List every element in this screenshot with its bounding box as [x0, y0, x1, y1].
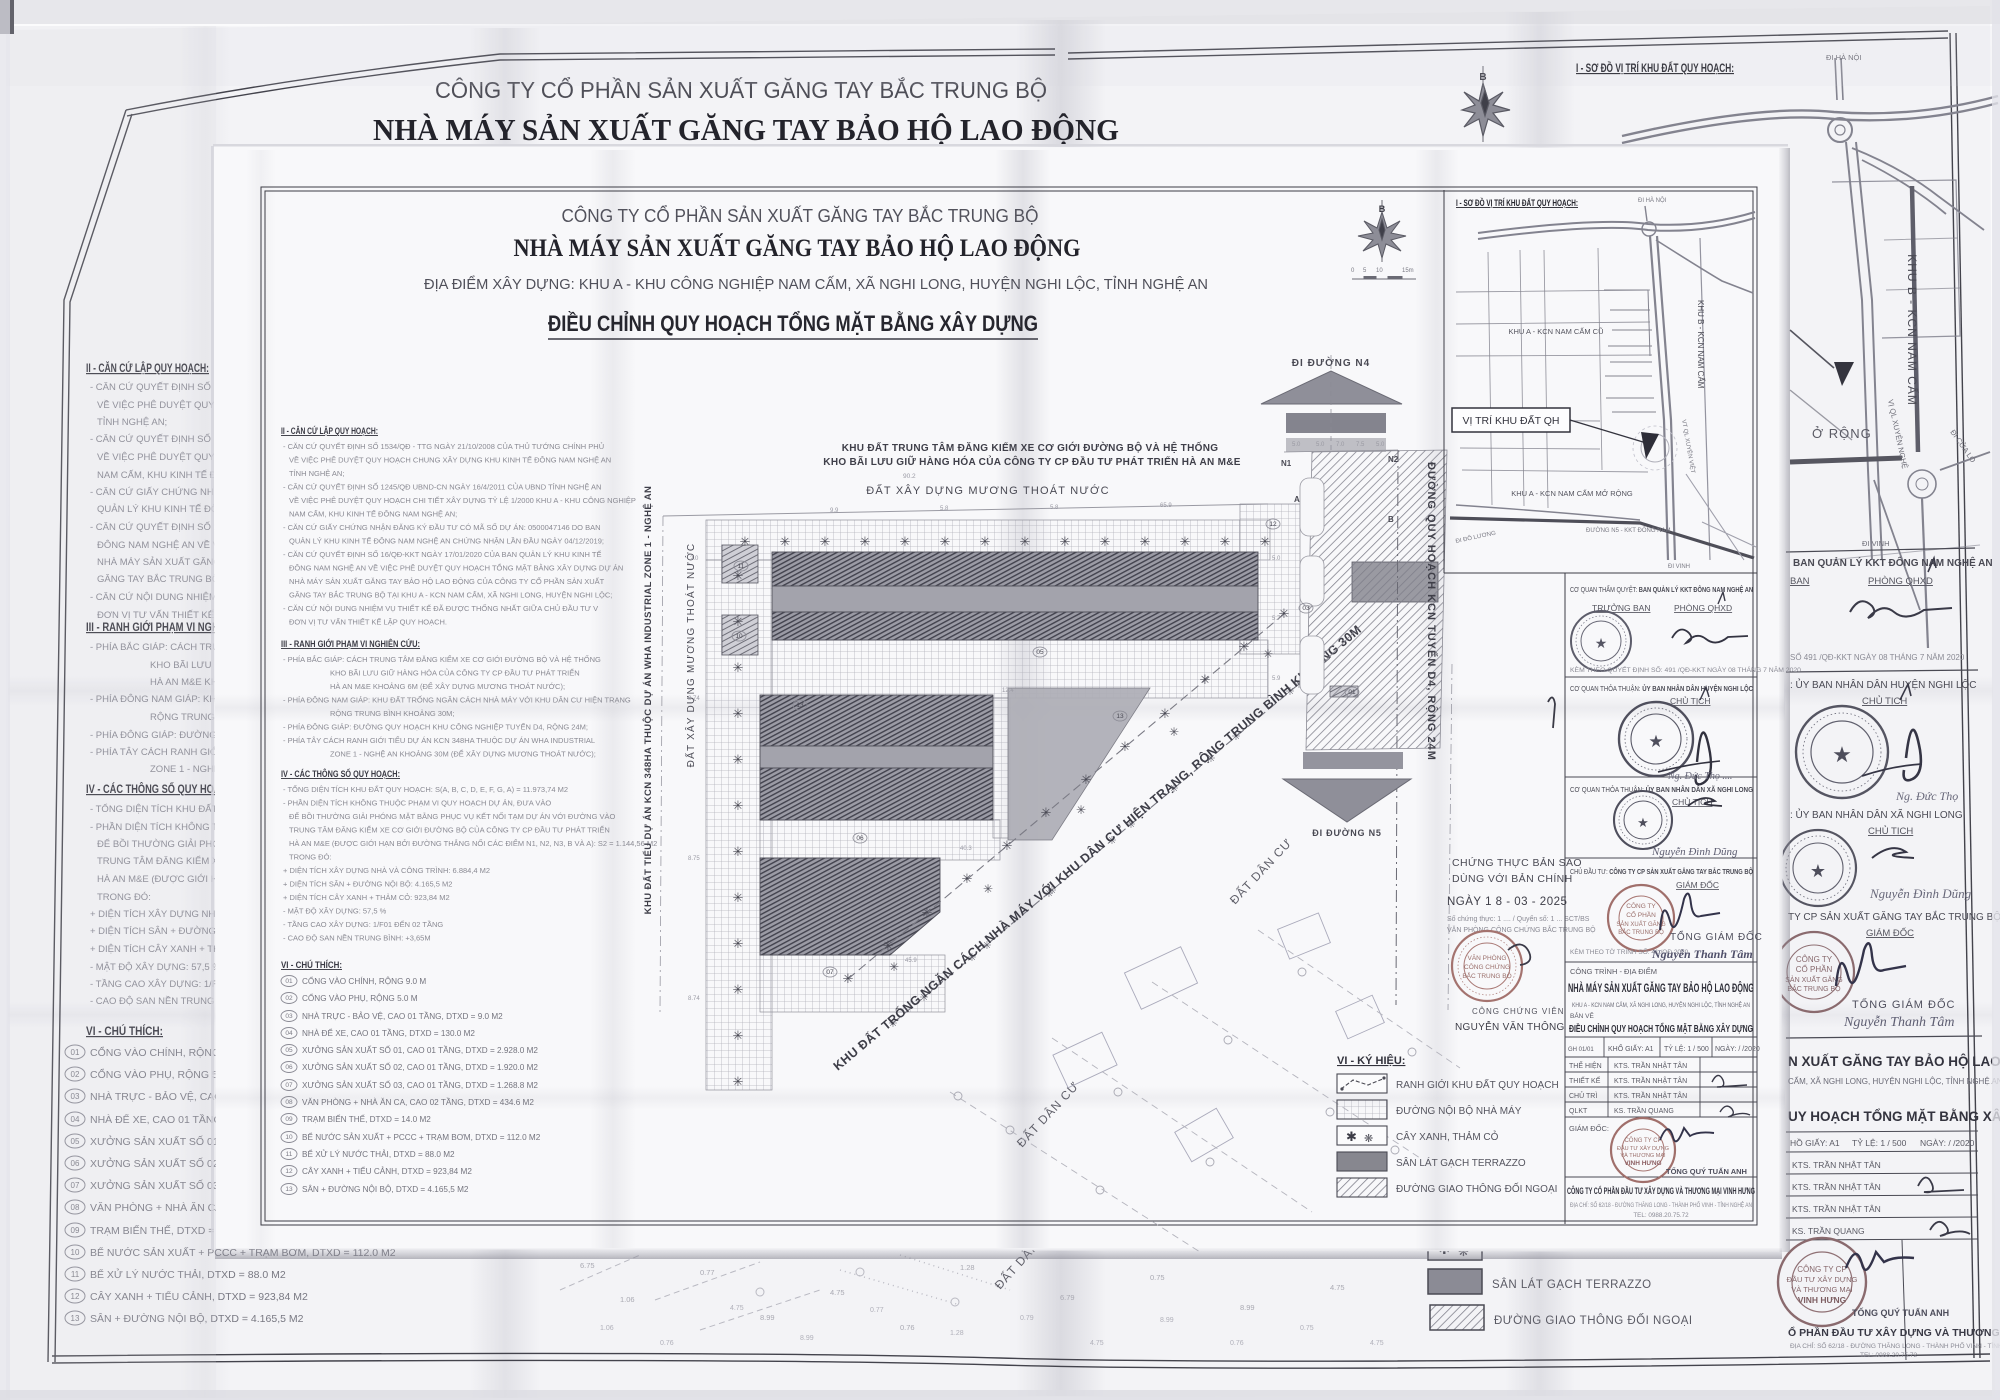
- svg-text:✳: ✳: [1260, 534, 1271, 549]
- svg-text:5.8: 5.8: [940, 506, 949, 512]
- svg-text:- CĂN CỨ NỘI DUNG NHIỆM VỤ THI: - CĂN CỨ NỘI DUNG NHIỆM VỤ THIẾT KẾ ĐÃ Đ…: [283, 603, 598, 613]
- svg-text:✳: ✳: [1100, 534, 1111, 549]
- svg-text:Ng. Đức Thọ: Ng. Đức Thọ: [1895, 789, 1958, 803]
- svg-text:CHỦ ĐẦU TƯ: CÔNG TY CP SẢN XU: CHỦ ĐẦU TƯ: CÔNG TY CP SẢN XUẤT GĂNG TAY…: [1570, 866, 1753, 876]
- svg-text:CƠ QUAN THẨM QUYỆT: BAN QUẢN: CƠ QUAN THẨM QUYỆT: BAN QUẢN LÝ KKT ĐÔNG…: [1570, 585, 1753, 594]
- svg-text:08: 08: [285, 1099, 293, 1106]
- svg-text:CHỦ TRÌ: CHỦ TRÌ: [1569, 1091, 1597, 1100]
- svg-text:✳: ✳: [1263, 647, 1273, 661]
- svg-text:- TỔNG DIỆN TÍCH KHU ĐẤT QUY H: - TỔNG DIỆN TÍCH KHU ĐẤT QUY HOẠCH: S(A,…: [283, 784, 568, 794]
- svg-text:10: 10: [1376, 268, 1383, 274]
- svg-text:✳: ✳: [780, 534, 791, 549]
- svg-text:NHÀ TRỰC - BẢO VỆ, CAO 01 TẦNG: NHÀ TRỰC - BẢO VỆ, CAO 01 TẦNG, DTXD = 9…: [302, 1010, 503, 1021]
- svg-text:KTS. TRẦN NHẬT TÂN: KTS. TRẦN NHẬT TÂN: [1792, 1182, 1881, 1192]
- svg-text:BẢN VẼ: BẢN VẼ: [1570, 1011, 1595, 1020]
- svg-text:06: 06: [856, 835, 864, 842]
- svg-text:✳: ✳: [733, 706, 744, 721]
- svg-text:VINH HƯNG: VINH HƯNG: [1624, 1160, 1661, 1167]
- svg-text:13: 13: [796, 702, 804, 709]
- svg-text:8.99: 8.99: [800, 1335, 814, 1342]
- svg-text:✳: ✳: [733, 752, 744, 767]
- svg-text:8.74: 8.74: [688, 696, 700, 702]
- svg-text:✳: ✳: [883, 938, 894, 953]
- svg-text:ĐẤT XÂY DỰNG MƯƠNG THOÁT NƯỚC: ĐẤT XÂY DỰNG MƯƠNG THOÁT NƯỚC: [684, 543, 697, 768]
- svg-text:BỂ NƯỚC SẢN XUẤT + PCCC + TRẠM: BỂ NƯỚC SẢN XUẤT + PCCC + TRẠM BƠM, DTXD…: [302, 1131, 541, 1142]
- svg-text:0.76: 0.76: [660, 1340, 674, 1347]
- svg-text:05: 05: [1036, 649, 1044, 656]
- svg-text:ĐƯỜNG GIAO THÔNG ĐỐI NGOẠI: ĐƯỜNG GIAO THÔNG ĐỐI NGOẠI: [1396, 1181, 1557, 1195]
- svg-text:CÔNG CHỨNG: CÔNG CHỨNG: [1464, 962, 1510, 971]
- svg-text:8.75: 8.75: [688, 856, 700, 862]
- svg-text:4.75: 4.75: [1370, 1340, 1384, 1347]
- svg-text:ĐỊA ĐIỂM XÂY DỰNG: KHU A - KHU: ĐỊA ĐIỂM XÂY DỰNG: KHU A - KHU CÔNG NGHI…: [424, 275, 1208, 293]
- svg-text:VĂN PHÒNG + NHÀ ĂN CA, CAO 02: VĂN PHÒNG + NHÀ ĂN CA, CAO 02 TẦNG, DTXD…: [302, 1097, 534, 1107]
- svg-text:ĐƯỜNG NỘI BỘ NHÀ MÁY: ĐƯỜNG NỘI BỘ NHÀ MÁY: [1396, 1104, 1522, 1117]
- svg-text:Nguyễn Thanh Tâm: Nguyễn Thanh Tâm: [1843, 1015, 1954, 1030]
- svg-text:★: ★: [1637, 815, 1649, 830]
- svg-text:4.75: 4.75: [730, 1305, 744, 1312]
- svg-text:15m: 15m: [1402, 268, 1414, 274]
- svg-text:CHỦ TỊCH: CHỦ TỊCH: [1670, 695, 1710, 706]
- svg-text:ĐƯỜNG QUY HOẠCH KCN TUYẾN D4,: ĐƯỜNG QUY HOẠCH KCN TUYẾN D4, RỘNG 24M: [1425, 462, 1438, 761]
- svg-text:11: 11: [738, 563, 745, 570]
- svg-text:CHỨNG THỰC BẢN SAO: CHỨNG THỰC BẢN SAO: [1452, 856, 1582, 869]
- svg-text:CÔNG TY CP: CÔNG TY CP: [1797, 1265, 1847, 1274]
- svg-text:CỔNG VÀO PHỤ, RỘNG 5.0 M: CỔNG VÀO PHỤ, RỘNG 5.0 M: [302, 992, 418, 1003]
- svg-text:VỀ VIỆC PHÊ DUYỆT QUY HOẠCH CH: VỀ VIỆC PHÊ DUYỆT QUY HOẠCH CHUNG XÂY DỰ…: [289, 455, 611, 465]
- svg-text:CẤM, XÃ NGHI LONG, HUYỆN NGHI: CẤM, XÃ NGHI LONG, HUYỆN NGHI LỘC, TỈNH …: [1788, 1076, 2000, 1086]
- svg-text:Nguyễn Thanh Tâm: Nguyễn Thanh Tâm: [1651, 947, 1753, 961]
- svg-text:6.79: 6.79: [1060, 1293, 1075, 1302]
- svg-text:TỶ LỆ: 1 / 500: TỶ LỆ: 1 / 500: [1664, 1044, 1709, 1053]
- svg-text:✳: ✳: [740, 534, 751, 549]
- svg-text:ĐI VINH: ĐI VINH: [1862, 539, 1890, 548]
- svg-text:TỐNG QUÝ TUẤN ANH: TỐNG QUÝ TUẤN ANH: [1666, 1166, 1747, 1176]
- svg-text:ĐẦU TƯ XÂY DỰNG: ĐẦU TƯ XÂY DỰNG: [1617, 1145, 1669, 1152]
- svg-text:VI - CHÚ THÍCH:: VI - CHÚ THÍCH:: [281, 959, 342, 971]
- svg-text:8.74: 8.74: [688, 996, 700, 1002]
- svg-text:0.75: 0.75: [1150, 1273, 1165, 1282]
- svg-text:KHO BÃI LƯU GIỮ HÀNG HÓA CỦA C: KHO BÃI LƯU GIỮ HÀNG HÓA CỦA CÔNG TY CP …: [330, 668, 580, 678]
- svg-text:6.75: 6.75: [580, 1261, 595, 1270]
- svg-text:★: ★: [1810, 861, 1826, 881]
- svg-text:CỔNG VÀO CHÍNH, RỘNG 9.0 M: CỔNG VÀO CHÍNH, RỘNG 9.0 M: [302, 975, 426, 986]
- svg-text:SÂN LÁT GẠCH TERRAZZO: SÂN LÁT GẠCH TERRAZZO: [1396, 1156, 1526, 1169]
- svg-text:TRẠM BIẾN THẾ, DTXD = 14.0 M2: TRẠM BIẾN THẾ, DTXD = 14.0 M2: [302, 1114, 431, 1124]
- svg-text:Số chứng thực: 1 .... / Quyển: Số chứng thực: 1 .... / Quyển số: 1 ... …: [1447, 914, 1590, 923]
- svg-text:13: 13: [1116, 713, 1124, 720]
- svg-text:XƯỞNG SẢN XUẤT SỐ 03, CAO 01 T: XƯỞNG SẢN XUẤT SỐ 03, CAO 01 TẦNG, DTXD …: [302, 1079, 538, 1090]
- svg-text:4.75: 4.75: [1090, 1340, 1104, 1347]
- svg-text:NAM CẤM, KHU KINH TẾ ĐÔNG NAM: NAM CẤM, KHU KINH TẾ ĐÔNG NAM NGHỆ AN;: [289, 509, 457, 519]
- svg-text:TỔNG GIÁM ĐỐC: TỔNG GIÁM ĐỐC: [1670, 929, 1763, 943]
- svg-text:KHU A - KCN NAM CẤM CŨ: KHU A - KCN NAM CẤM CŨ: [1508, 326, 1603, 336]
- svg-text:VI - KÝ HIỆU:: VI - KÝ HIỆU:: [1337, 1054, 1405, 1067]
- svg-text:✳: ✳: [962, 871, 973, 886]
- svg-text:0.79: 0.79: [1020, 1315, 1034, 1322]
- svg-text:✳: ✳: [889, 960, 899, 974]
- svg-text:XƯỞNG SẢN XUẤT SỐ 02, CAO 01 T: XƯỞNG SẢN XUẤT SỐ 02, CAO 01 TẦNG, DTXD …: [302, 1061, 538, 1072]
- svg-text:ZONE 1 - NGHỆ AN KHOẢNG 30M (Đ: ZONE 1 - NGHỆ AN KHOẢNG 30M (ĐỂ XÂY DỰNG…: [330, 750, 596, 759]
- svg-text:GIÁM ĐỐC: GIÁM ĐỐC: [1676, 879, 1719, 890]
- svg-text:QLKT: QLKT: [1569, 1108, 1588, 1115]
- svg-text:9.9: 9.9: [830, 508, 839, 514]
- svg-text:02: 02: [285, 995, 293, 1002]
- svg-text:KHO BÃI LƯU GIỮ HÀNG HÓA CỦA C: KHO BÃI LƯU GIỮ HÀNG HÓA CỦA CÔNG TY CP …: [823, 455, 1240, 468]
- svg-text:KTS. TRẦN NHẬT TÂN: KTS. TRẦN NHẬT TÂN: [1792, 1204, 1881, 1214]
- svg-text:CÂY XANH, THẢM CỎ: CÂY XANH, THẢM CỎ: [1396, 1130, 1499, 1143]
- svg-text:ĐI HÀ NỘI: ĐI HÀ NỘI: [1638, 197, 1667, 204]
- svg-text:5.7: 5.7: [1272, 616, 1281, 622]
- svg-text:PHÒNG QHXD: PHÒNG QHXD: [1868, 576, 1933, 587]
- svg-text:KHU B - KCN NAM CẤM: KHU B - KCN NAM CẤM: [1905, 254, 1920, 406]
- svg-text:✳: ✳: [733, 936, 744, 951]
- svg-text:65.9: 65.9: [1160, 503, 1172, 509]
- svg-text:: ỦY BAN NHÂN DÂN HUYỆN NGHI L: : ỦY BAN NHÂN DÂN HUYỆN NGHI LỘC: [1790, 678, 1977, 691]
- svg-text:ĐẦU TƯ XÂY DỰNG: ĐẦU TƯ XÂY DỰNG: [1787, 1274, 1858, 1284]
- svg-text:CÔNG TRÌNH - ĐỊA ĐIỂM: CÔNG TRÌNH - ĐỊA ĐIỂM: [1570, 967, 1657, 976]
- svg-text:B: B: [1388, 515, 1394, 524]
- svg-text:✳: ✳: [733, 844, 744, 859]
- svg-text:✳: ✳: [1239, 639, 1250, 654]
- svg-text:BAN: BAN: [1790, 576, 1810, 587]
- svg-text:CÔNG TY CỔ PHẦN SẢN XUẤT GĂNG: CÔNG TY CỔ PHẦN SẢN XUẤT GĂNG TAY BẮC TR…: [562, 205, 1039, 226]
- svg-text:ĐIỀU CHỈNH QUY HOẠCH TỔNG MẶT: ĐIỀU CHỈNH QUY HOẠCH TỔNG MẶT BẰNG XÂY D…: [1569, 1022, 1753, 1035]
- svg-text:GIÁM ĐỐC:: GIÁM ĐỐC:: [1569, 1123, 1609, 1133]
- svg-text:05: 05: [285, 1047, 293, 1054]
- svg-text:- MẬT ĐỘ XÂY DỰNG: 57,5 %: - MẬT ĐỘ XÂY DỰNG: 57,5 %: [283, 907, 387, 916]
- svg-text:Ở RỘNG: Ở RỘNG: [1812, 426, 1872, 441]
- svg-text:✳: ✳: [1220, 534, 1231, 549]
- svg-text:KHU B - KCN NAM CẤM: KHU B - KCN NAM CẤM: [1696, 300, 1706, 389]
- svg-text:CHỦ TỊCH: CHỦ TỊCH: [1862, 695, 1907, 707]
- svg-text:✳: ✳: [860, 534, 871, 549]
- svg-text:❋: ❋: [1364, 1133, 1373, 1145]
- svg-text:NGÀY: / /2020: NGÀY: / /2020: [1715, 1044, 1760, 1053]
- svg-text:✳: ✳: [1002, 838, 1013, 853]
- svg-text:+ DIỆN TÍCH CÂY XANH + THẢM CỎ: + DIỆN TÍCH CÂY XANH + THẢM CỎ: 923,84 M…: [283, 893, 450, 902]
- svg-text:NHÀ MÁY SẢN XUẤT GĂNG TAY BẢO: NHÀ MÁY SẢN XUẤT GĂNG TAY BẢO HỘ LAO ĐỘN…: [373, 111, 1119, 147]
- svg-text:0.77: 0.77: [700, 1268, 715, 1277]
- svg-text:ĐÔNG NAM NGHỆ AN VỀ VIỆC PHÊ D: ĐÔNG NAM NGHỆ AN VỀ VIỆC PHÊ DUYỆT QUY H…: [289, 563, 623, 573]
- svg-text:ĐỂ BỒI THƯỜNG GIẢI PHÓNG MẶT B: ĐỂ BỒI THƯỜNG GIẢI PHÓNG MẶT BẰNG PHỤC V…: [289, 811, 615, 821]
- svg-text:- PHÍA ĐÔNG GIÁP: ĐƯỜNG QUY H: - PHÍA ĐÔNG GIÁP: ĐƯỜNG QUY HOẠCH KHU CÔ…: [283, 722, 588, 732]
- svg-text:✳: ✳: [1180, 534, 1191, 549]
- svg-text:CÂY XANH + TIỂU CẢNH, DTXD = 9: CÂY XANH + TIỂU CẢNH, DTXD = 923,84 M2: [302, 1165, 472, 1176]
- svg-text:- PHÍA TÂY CÁCH RANH GIỚI: - PHÍA TÂY CÁCH RANH GIỚI TIỂU DỰ ÁN KCN…: [283, 736, 595, 745]
- svg-text:0.76: 0.76: [900, 1323, 915, 1332]
- svg-text:✳: ✳: [1020, 534, 1031, 549]
- svg-text:NHÀ MÁY SẢN XUẤT GĂNG TAY BẢO: NHÀ MÁY SẢN XUẤT GĂNG TAY BẢO HỘ LAO ĐỘN…: [289, 576, 605, 586]
- svg-text:N1: N1: [1281, 459, 1292, 468]
- svg-text:A: A: [1294, 495, 1300, 504]
- svg-text:II - CĂN CỨ LẬP QUY HOẠCH:: II - CĂN CỨ LẬP QUY HOẠCH:: [281, 425, 378, 437]
- svg-text:- CĂN CỨ QUYẾT ĐỊNH SỐ 1534/QĐ: - CĂN CỨ QUYẾT ĐỊNH SỐ 1534/QĐ - TTG NGÀ…: [283, 441, 604, 451]
- svg-text:ĐƯỜNG GIAO THÔNG ĐỐI NGOẠI: ĐƯỜNG GIAO THÔNG ĐỐI NGOẠI: [1494, 1313, 1693, 1327]
- svg-text:✳: ✳: [733, 890, 744, 905]
- svg-text:- CĂN CỨ QUYẾT ĐỊNH SỐ 1245/QĐ: - CĂN CỨ QUYẾT ĐỊNH SỐ 1245/QĐ UBND-CN N…: [283, 482, 601, 492]
- svg-text:TỔNG GIÁM ĐỐC: TỔNG GIÁM ĐỐC: [1852, 997, 1955, 1011]
- svg-text:✳: ✳: [733, 660, 744, 675]
- svg-text:TEL: 0988.20.75.72: TEL: 0988.20.75.72: [1633, 1212, 1689, 1219]
- svg-text:✳: ✳: [1200, 672, 1211, 687]
- svg-text:KTS. TRẦN NHẬT TÂN: KTS. TRẦN NHẬT TÂN: [1792, 1160, 1881, 1170]
- svg-text:✳: ✳: [733, 1074, 744, 1089]
- svg-text:✳: ✳: [733, 798, 744, 813]
- svg-text:BỂ XỬ LÝ NƯỚC THẢI, DTXD = 88.: BỂ XỬ LÝ NƯỚC THẢI, DTXD = 88.0 M2: [302, 1148, 455, 1159]
- svg-text:04: 04: [285, 1030, 293, 1037]
- svg-text:TỐNG QUÝ TUẤN ANH: TỐNG QUÝ TUẤN ANH: [1852, 1307, 1949, 1318]
- svg-text:RỘNG TRUNG BÌNH KHOẢNG 30M;: RỘNG TRUNG BÌNH KHOẢNG 30M;: [330, 709, 454, 718]
- svg-text:0.76: 0.76: [1230, 1340, 1244, 1347]
- svg-text:ĐIỀU CHỈNH QUY HOẠCH TỔNG MẶT: ĐIỀU CHỈNH QUY HOẠCH TỔNG MẶT BẰNG XÂY D…: [548, 311, 1038, 336]
- svg-text:✳: ✳: [900, 534, 911, 549]
- svg-text:★: ★: [1648, 732, 1663, 751]
- svg-text:- CAO ĐỘ SAN NỀN TRUNG BÌNH: +: - CAO ĐỘ SAN NỀN TRUNG BÌNH: +3,65M: [283, 933, 431, 943]
- svg-text:ĐI ĐƯỜNG N5: ĐI ĐƯỜNG N5: [1312, 827, 1381, 838]
- svg-text:HÀ AN M&E KHOẢNG 6M (ĐỂ XÂY DỰ: HÀ AN M&E KHOẢNG 6M (ĐỂ XÂY DỰNG MƯƠNG T…: [330, 682, 565, 691]
- svg-text:TRONG ĐÓ:: TRONG ĐÓ:: [289, 853, 332, 862]
- svg-text:CÔNG TY CP: CÔNG TY CP: [1624, 1137, 1661, 1144]
- svg-text:PHÒNG QHXD: PHÒNG QHXD: [1674, 603, 1732, 613]
- svg-text:12: 12: [285, 1168, 293, 1175]
- svg-text:CƠ QUAN THỎA THUẬN: ỦY BAN NH: CƠ QUAN THỎA THUẬN: ỦY BAN NHÂN DÂN HUYỆ…: [1570, 684, 1753, 693]
- svg-text:GIÁM ĐỐC: GIÁM ĐỐC: [1866, 927, 1914, 939]
- svg-text:VÀ THƯƠNG MẠI: VÀ THƯƠNG MẠI: [1791, 1285, 1852, 1294]
- svg-text:QUẢN LÝ KHU KINH TẾ ĐÔNG NAM N: QUẢN LÝ KHU KINH TẾ ĐÔNG NAM NGHỆ AN CHỨ…: [289, 536, 604, 546]
- svg-text:✳: ✳: [733, 614, 744, 629]
- svg-text:CƠ QUAN THỎA THUẬN: ỦY BAN NH: CƠ QUAN THỎA THUẬN: ỦY BAN NHÂN DÂN XÃ N…: [1570, 785, 1753, 794]
- svg-text:✱: ✱: [1346, 1129, 1357, 1144]
- svg-text:VĂN PHÒNG CÔNG CHỨNG BẮC TRUNG: VĂN PHÒNG CÔNG CHỨNG BẮC TRUNG BỘ: [1447, 925, 1596, 934]
- svg-text:Nguyễn Đình Dũng: Nguyễn Đình Dũng: [1869, 886, 1972, 901]
- svg-text:✳: ✳: [983, 882, 993, 896]
- svg-text:Nguyễn Đình Dũng: Nguyễn Đình Dũng: [1651, 846, 1738, 858]
- svg-text:09: 09: [285, 1116, 293, 1123]
- svg-text:★: ★: [1595, 635, 1608, 651]
- svg-text:HỒ GIẤY: A1: HỒ GIẤY: A1: [1790, 1137, 1840, 1148]
- svg-text:NGÀY: / /2020: NGÀY: / /2020: [1920, 1138, 1975, 1148]
- svg-text:N2: N2: [1388, 455, 1399, 464]
- svg-text:13: 13: [285, 1186, 293, 1193]
- svg-text:✳: ✳: [1081, 772, 1092, 787]
- svg-text:07: 07: [826, 969, 834, 976]
- svg-text:1.06: 1.06: [620, 1295, 635, 1304]
- svg-text:CÔNG TY: CÔNG TY: [1626, 901, 1656, 910]
- svg-text:4.75: 4.75: [830, 1288, 845, 1297]
- svg-text:BAN QUẢN LÝ KKT ĐÔNG NAM NGHỆ: BAN QUẢN LÝ KKT ĐÔNG NAM NGHỆ AN: [1793, 556, 1993, 569]
- svg-text:Ng. Đức Thọ ....: Ng. Đức Thọ ....: [1667, 771, 1732, 782]
- svg-text:✳: ✳: [733, 1028, 744, 1043]
- svg-text:THỂ HIỆN: THỂ HIỆN: [1569, 1061, 1602, 1070]
- svg-text:0.75: 0.75: [1300, 1325, 1314, 1332]
- svg-text:TỶ LỆ: 1 / 500: TỶ LỆ: 1 / 500: [1852, 1137, 1907, 1148]
- svg-text:06: 06: [285, 1064, 293, 1071]
- svg-text:BẮC TRUNG BỘ: BẮC TRUNG BỘ: [1787, 984, 1841, 993]
- svg-text:✳: ✳: [1160, 706, 1171, 721]
- svg-text:TỈNH NGHỆ AN;: TỈNH NGHỆ AN;: [289, 469, 344, 478]
- svg-text:DÙNG VỚI BẢN CHÍNH: DÙNG VỚI BẢN CHÍNH: [1452, 872, 1573, 885]
- svg-text:★: ★: [1832, 742, 1852, 767]
- svg-text:01: 01: [285, 978, 293, 985]
- svg-text:NHÀ MÁY SẢN XUẤT GĂNG TAY BẢO: NHÀ MÁY SẢN XUẤT GĂNG TAY BẢO HỘ LAO ĐỘN…: [514, 233, 1081, 262]
- svg-text:1.28: 1.28: [950, 1330, 964, 1337]
- svg-text:03: 03: [285, 1013, 293, 1020]
- svg-text:KS. TRẦN QUANG: KS. TRẦN QUANG: [1792, 1226, 1865, 1236]
- svg-text:CÔNG CHỨNG VIÊN: CÔNG CHỨNG VIÊN: [1472, 1007, 1565, 1016]
- svg-text:+ DIỆN TÍCH XÂY DỰNG NHÀ VÀ CÔ: + DIỆN TÍCH XÂY DỰNG NHÀ VÀ CÔNG TRÌNH: …: [283, 866, 490, 875]
- svg-text:✳: ✳: [940, 534, 951, 549]
- svg-text:ĐƠN VỊ TƯ VẤN THIẾT KẾ LẬP QUY: ĐƠN VỊ TƯ VẤN THIẾT KẾ LẬP QUY HOẠCH.: [289, 617, 447, 627]
- svg-text:BẮC TRUNG BỘ: BẮC TRUNG BỘ: [1462, 971, 1511, 980]
- svg-text:03: 03: [1302, 605, 1310, 612]
- svg-text:NHÀ MÁY SẢN XUẤT GĂNG TAY BẢO: NHÀ MÁY SẢN XUẤT GĂNG TAY BẢO HỘ LAO ĐỘN…: [1568, 980, 1754, 995]
- svg-text:NGÀY 1 8 - 03 - 2025: NGÀY 1 8 - 03 - 2025: [1447, 895, 1567, 908]
- svg-text:✳: ✳: [843, 971, 854, 986]
- svg-text:TEL: 0988.20.75.72: TEL: 0988.20.75.72: [1860, 1352, 1917, 1359]
- svg-text:KHU ĐẤT TIỂU DỰ ÁN KCN 348HA T: KHU ĐẤT TIỂU DỰ ÁN KCN 348HA THUỘC DỰ ÁN…: [642, 486, 654, 915]
- svg-text:VÀ THƯƠNG MẠI: VÀ THƯƠNG MẠI: [1620, 1152, 1666, 1159]
- svg-text:CÔNG TY CỔ PHẦN ĐẦU TƯ XÂY DỰN: CÔNG TY CỔ PHẦN ĐẦU TƯ XÂY DỰNG VÀ THƯƠN…: [1567, 1185, 1755, 1197]
- svg-text:0.77: 0.77: [870, 1307, 884, 1314]
- svg-text:IV - CÁC THÔNG SỐ QUY HOẠCH:: IV - CÁC THÔNG SỐ QUY HOẠCH:: [281, 768, 400, 780]
- svg-text:5.0: 5.0: [1272, 556, 1281, 562]
- svg-text:40.3: 40.3: [960, 846, 972, 852]
- svg-text:11: 11: [286, 1151, 293, 1158]
- svg-text:5.9: 5.9: [1272, 676, 1281, 682]
- svg-text:XƯỞNG SẢN XUẤT SỐ 01, CAO 01 T: XƯỞNG SẢN XUẤT SỐ 01, CAO 01 TẦNG, DTXD …: [302, 1044, 538, 1055]
- svg-text:III - RANH GIỚI PHẠM VI NGHIÊN: III - RANH GIỚI PHẠM VI NGHIÊN CỨU:: [281, 638, 420, 650]
- svg-text:✳: ✳: [1169, 725, 1179, 739]
- svg-text:CÔNG TY: CÔNG TY: [1796, 955, 1833, 964]
- svg-text:8.99: 8.99: [1240, 1303, 1255, 1312]
- svg-text:ĐẤT XÂY DỰNG MƯƠNG THOÁT NƯỚC: ĐẤT XÂY DỰNG MƯƠNG THOÁT NƯỚC: [866, 484, 1110, 497]
- svg-text:10: 10: [735, 633, 743, 640]
- svg-text:NHÀ ĐỂ XE, CAO 01 TẦNG, DTXD =: NHÀ ĐỂ XE, CAO 01 TẦNG, DTXD = 130.0 M2: [302, 1027, 475, 1038]
- svg-text:✳: ✳: [1060, 534, 1071, 549]
- svg-text:ĐI VINH: ĐI VINH: [1668, 564, 1690, 570]
- svg-text:RANH GIỚI KHU ĐẤT QUY HOẠCH: RANH GIỚI KHU ĐẤT QUY HOẠCH: [1396, 1078, 1559, 1091]
- svg-text:- CĂN CỨ QUYẾT ĐỊNH SỐ 16/QĐ-K: - CĂN CỨ QUYẾT ĐỊNH SỐ 16/QĐ-KKT NGÀY 17…: [283, 549, 601, 559]
- svg-text:CHỦ TỊCH: CHỦ TỊCH: [1868, 825, 1913, 837]
- svg-text:GĂNG TAY BẮC TRUNG BỘ TẠI KHU: GĂNG TAY BẮC TRUNG BỘ TẠI KHU A - KCN NA…: [289, 590, 612, 600]
- svg-text:VỀ VIỆC PHÊ DUYỆT QUY HOẠCH CH: VỀ VIỆC PHÊ DUYỆT QUY HOẠCH CHI TIẾT XÂY…: [289, 495, 636, 505]
- svg-text:Ổ PHẦN ĐẦU TƯ XÂY DỰNG VÀ THƯƠ: Ổ PHẦN ĐẦU TƯ XÂY DỰNG VÀ THƯƠNG MẠI VIN…: [1788, 1326, 2000, 1339]
- svg-text:VĂN PHÒNG: VĂN PHÒNG: [1467, 953, 1506, 962]
- svg-text:2.0: 2.0: [690, 556, 699, 562]
- svg-text:SỐ 491 /QĐ-KKT NGÀY 08 THÁNG 7: SỐ 491 /QĐ-KKT NGÀY 08 THÁNG 7 NĂM 2020: [1790, 652, 1965, 662]
- svg-text:N XUẤT GĂNG TAY BẢO HỘ LAO ĐỘN: N XUẤT GĂNG TAY BẢO HỘ LAO ĐỘNG: [1788, 1054, 2000, 1069]
- svg-text:NGUYỄN VĂN THÔNG: NGUYỄN VĂN THÔNG: [1455, 1020, 1565, 1033]
- svg-text:✳: ✳: [733, 982, 744, 997]
- svg-text:HÀ AN M&E (ĐƯỢC GIỚI HẠN BỞI Đ: HÀ AN M&E (ĐƯỢC GIỚI HẠN BỞI ĐƯỜNG THẲNG…: [289, 838, 657, 848]
- svg-text:: ỦY BAN NHÂN DÂN XÃ NGHI LONG: : ỦY BAN NHÂN DÂN XÃ NGHI LONG: [1790, 808, 1963, 821]
- svg-text:✳: ✳: [980, 534, 991, 549]
- svg-text:8.99: 8.99: [1160, 1317, 1174, 1324]
- svg-text:✳: ✳: [922, 905, 933, 920]
- svg-text:VINH HƯNG: VINH HƯNG: [1798, 1295, 1847, 1305]
- svg-text:1.06: 1.06: [600, 1325, 614, 1332]
- svg-text:+ DIỆN TÍCH SÂN + ĐƯỜNG NỘI BỘ: + DIỆN TÍCH SÂN + ĐƯỜNG NỘI BỘ: 4.165,5 …: [283, 880, 452, 889]
- svg-text:KHU A - KCN NAM CẤM MỞ RỘNG: KHU A - KCN NAM CẤM MỞ RỘNG: [1511, 488, 1633, 498]
- svg-text:4.75: 4.75: [1330, 1283, 1345, 1292]
- svg-text:✳: ✳: [1076, 803, 1086, 817]
- svg-text:07: 07: [285, 1082, 293, 1089]
- svg-text:- PHÍA BẮC GIÁP: CÁCH TRUN: - PHÍA BẮC GIÁP: CÁCH TRUNG TÂM ĐĂNG KIỂ…: [283, 654, 601, 664]
- svg-text:- PHÍA ĐÔNG NAM GIÁP: KHU ĐẤT: - PHÍA ĐÔNG NAM GIÁP: KHU ĐẤT TRỐNG NGĂN…: [283, 695, 631, 705]
- svg-text:UY HOẠCH TỔNG MẶT BẰNG XÂY DỰN: UY HOẠCH TỔNG MẶT BẰNG XÂY DỰNG: [1788, 1109, 2000, 1124]
- svg-text:- CĂN CỨ GIẤY CHỨNG NHẬN ĐĂNG: - CĂN CỨ GIẤY CHỨNG NHẬN ĐĂNG KÝ ĐẦU TƯ …: [283, 522, 601, 532]
- svg-text:12.4: 12.4: [1002, 688, 1014, 694]
- svg-text:12: 12: [1269, 521, 1277, 528]
- svg-text:SẢN XUẤT GĂNG: SẢN XUẤT GĂNG: [1616, 921, 1666, 928]
- svg-text:SÂN LÁT GẠCH TERRAZZO: SÂN LÁT GẠCH TERRAZZO: [1492, 1278, 1652, 1291]
- svg-text:1.28: 1.28: [960, 1263, 975, 1272]
- svg-text:5.8: 5.8: [1050, 505, 1059, 511]
- svg-text:8.99: 8.99: [760, 1313, 775, 1322]
- svg-text:45.9: 45.9: [905, 958, 917, 964]
- svg-text:10: 10: [285, 1134, 293, 1141]
- svg-text:I - SƠ ĐỒ VỊ TRÍ KHU ĐẤT QUY H: I - SƠ ĐỒ VỊ TRÍ KHU ĐẤT QUY HOẠCH:: [1456, 197, 1578, 208]
- svg-text:✳: ✳: [1140, 534, 1151, 549]
- svg-text:KHU ĐẤT TRUNG TÂM ĐĂNG KIỂM XE: KHU ĐẤT TRUNG TÂM ĐĂNG KIỂM XE CƠ GIỚI Đ…: [842, 440, 1219, 454]
- svg-text:- PHẦN DIỆN TÍCH KHÔNG THUỘC P: - PHẦN DIỆN TÍCH KHÔNG THUỘC PHẠM VI QUY…: [283, 798, 551, 808]
- svg-text:✳: ✳: [1041, 805, 1052, 820]
- svg-text:01: 01: [1348, 689, 1356, 696]
- svg-text:- TẦNG CAO XÂY DỰNG: 1/F01 ĐẾN: - TẦNG CAO XÂY DỰNG: 1/F01 ĐẾN 02 TẦNG: [283, 919, 443, 929]
- svg-text:CỔ PHẦN: CỔ PHẦN: [1796, 964, 1833, 974]
- svg-text:GH 01/01: GH 01/01: [1568, 1047, 1594, 1053]
- svg-text:TY CP SẢN XUẤT GĂNG TAY BẮC TR: TY CP SẢN XUẤT GĂNG TAY BẮC TRUNG BỘ: [1788, 910, 2000, 923]
- svg-text:BẮC TRUNG BỘ: BẮC TRUNG BỘ: [1618, 928, 1664, 936]
- svg-text:✳: ✳: [1120, 739, 1131, 754]
- svg-text:TRUNG TÂM ĐĂNG KIỂM XE CƠ GIỚI: TRUNG TÂM ĐĂNG KIỂM XE CƠ GIỚI ĐƯỜNG BỘ …: [289, 825, 610, 835]
- svg-text:VỊ TRÍ KHU ĐẤT QH: VỊ TRÍ KHU ĐẤT QH: [1462, 414, 1559, 427]
- svg-text:SÂN + ĐƯỜNG NỘI BỘ, DTXD = 4.1: SÂN + ĐƯỜNG NỘI BỘ, DTXD = 4.165,5 M2: [302, 1184, 469, 1194]
- svg-text:ĐƯỜNG N5 - KKT ĐÔNG NAM: ĐƯỜNG N5 - KKT ĐÔNG NAM: [1586, 527, 1671, 534]
- svg-text:90.2: 90.2: [903, 473, 916, 480]
- svg-text:✳: ✳: [820, 534, 831, 549]
